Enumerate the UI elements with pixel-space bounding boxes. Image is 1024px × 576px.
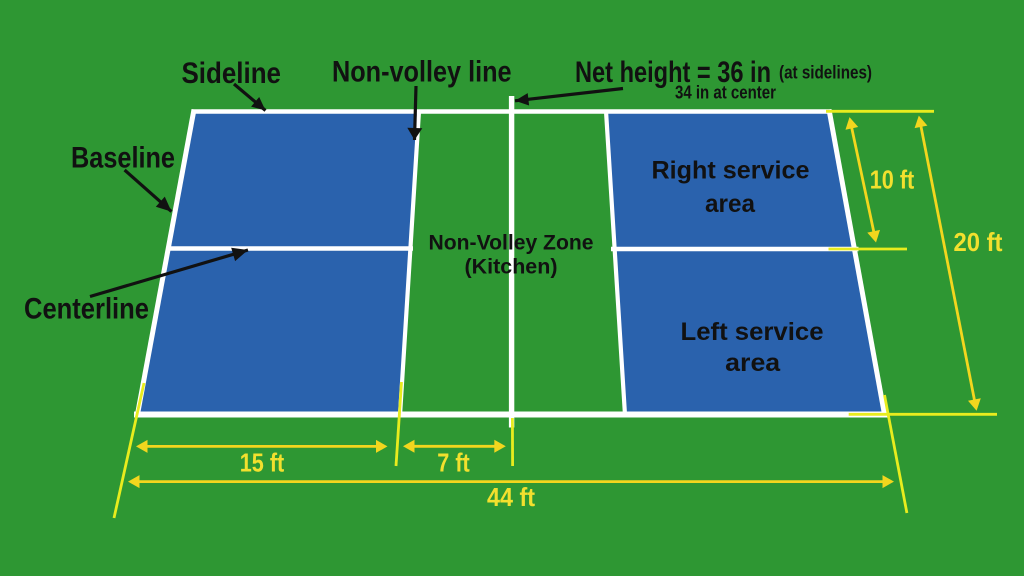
svg-text:area: area xyxy=(725,349,781,377)
svg-text:44 ft: 44 ft xyxy=(487,482,535,512)
svg-text:Non-volley line: Non-volley line xyxy=(332,56,512,89)
svg-text:7 ft: 7 ft xyxy=(437,448,470,478)
svg-text:10 ft: 10 ft xyxy=(870,165,915,195)
svg-text:Right service: Right service xyxy=(652,157,810,185)
svg-text:Sideline: Sideline xyxy=(182,57,282,90)
svg-text:34 in at center: 34 in at center xyxy=(675,83,776,103)
svg-text:Left service: Left service xyxy=(681,318,824,346)
svg-text:Baseline: Baseline xyxy=(71,142,175,175)
svg-text:Non-Volley Zone: Non-Volley Zone xyxy=(429,232,594,255)
svg-text:Centerline: Centerline xyxy=(24,293,149,326)
svg-text:15 ft: 15 ft xyxy=(240,448,285,478)
svg-text:area: area xyxy=(705,190,756,218)
svg-text:(at sidelines): (at sidelines) xyxy=(779,63,872,83)
svg-text:20 ft: 20 ft xyxy=(954,227,1003,257)
svg-text:(Kitchen): (Kitchen) xyxy=(465,256,558,279)
